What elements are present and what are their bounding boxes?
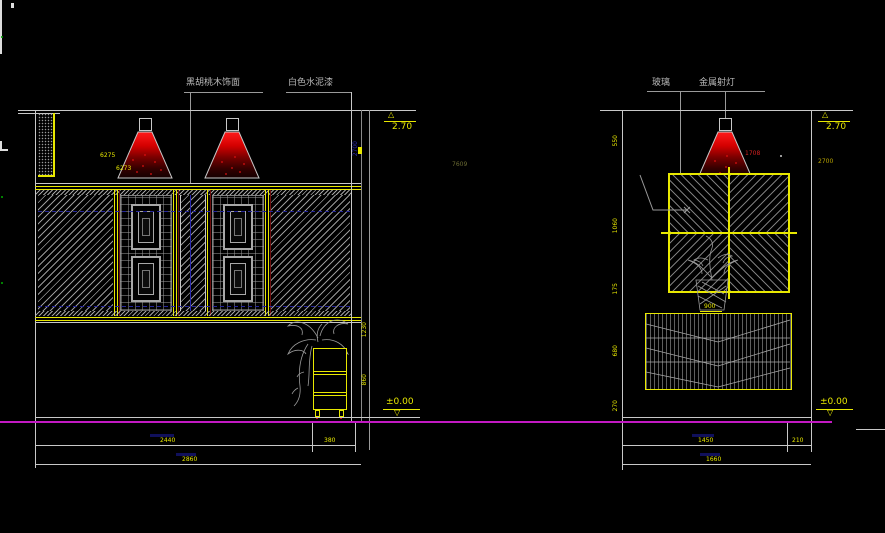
side-dimension-text: 1230 — [362, 322, 368, 337]
band-trim-line — [35, 186, 361, 187]
dimension-text: 1450 — [698, 438, 713, 444]
column-bottom-line — [38, 175, 55, 177]
stray-green-dot — [1, 36, 3, 38]
label-underline — [647, 91, 697, 92]
downlight-beam-icon — [202, 130, 262, 180]
level-value-top: 2.70 — [392, 123, 412, 132]
level-mark-line — [383, 409, 420, 410]
wall-hatch-strip — [181, 195, 205, 311]
panel-tag: 900 — [704, 304, 715, 310]
floor-line — [35, 417, 420, 418]
panel-frame-line — [114, 190, 115, 316]
material-label-wood: 黑胡桃木饰面 — [186, 79, 240, 88]
side-dimension-text: 550 — [613, 135, 619, 146]
dimension-line — [622, 464, 811, 465]
side-cabinet — [313, 348, 347, 410]
faint-dimension-text: 7609 — [452, 162, 467, 168]
louver-chevron-lines — [646, 314, 791, 389]
level-mark-icon: △ — [388, 111, 394, 119]
cabinet-shelf-line — [314, 371, 346, 372]
stray-green-dot — [1, 196, 3, 198]
dimension-text: 1660 — [706, 457, 721, 463]
wall-edge-line — [811, 110, 812, 452]
screen-artifact-bracket — [0, 141, 8, 151]
floor-line — [622, 417, 811, 418]
wall-line — [35, 110, 36, 421]
downlight-beam-icon — [115, 130, 175, 180]
label-underline — [184, 92, 263, 93]
panel-frame-red-line — [210, 190, 211, 316]
dimension-extension-line — [787, 423, 788, 452]
dimension-line — [35, 445, 355, 446]
dimension-extension-line — [369, 110, 370, 450]
wall-hatch-panel — [38, 195, 113, 311]
level-value-top: 2.70 — [826, 123, 846, 132]
cabinet-foot — [315, 410, 320, 417]
level-mark-icon: ▽ — [827, 409, 833, 417]
panel-divider-line — [205, 195, 206, 311]
label-underline — [286, 92, 352, 93]
side-dimension-text: 270 — [613, 400, 619, 411]
dimension-highlight — [358, 147, 362, 154]
aux-blue-line — [38, 211, 350, 212]
material-label-paint: 白色水泥漆 — [288, 79, 333, 88]
lamp-tag: 6273 — [116, 166, 131, 172]
level-value-floor: ±0.00 — [820, 398, 848, 407]
material-label-glass: 玻璃 — [652, 79, 670, 88]
stray-grey-dot — [780, 155, 782, 157]
plant-sketch — [676, 230, 748, 314]
dimension-line — [35, 464, 361, 465]
lattice-medallion — [223, 256, 253, 302]
side-dimension-text: 680 — [613, 345, 619, 356]
panel-frame-line — [268, 190, 269, 316]
dimension-text: 2440 — [160, 438, 175, 444]
aux-blue-line — [38, 306, 350, 307]
lamp-tag: 6275 — [100, 153, 115, 159]
leader-polyline — [636, 172, 696, 217]
material-label-spotlight: 金属射灯 — [699, 79, 735, 88]
floor-baseboard-line — [0, 421, 832, 423]
dimension-extension-line — [355, 423, 356, 452]
dimension-below-level: 2700 — [818, 159, 833, 165]
dimension-extension-line — [622, 110, 623, 470]
side-dimension-text: 860 — [362, 374, 368, 385]
cad-drawing-canvas: 黑胡桃木饰面 白色水泥漆 — [0, 0, 885, 533]
dimension-text: 380 — [324, 438, 335, 444]
lattice-screen-panel — [120, 195, 172, 311]
dimension-text: 2860 — [182, 457, 197, 463]
panel-frame-red-line — [178, 190, 179, 316]
cabinet-shelf-line — [314, 392, 346, 393]
panel-frame-line — [207, 190, 208, 316]
side-dimension-text: 1060 — [613, 218, 619, 233]
band-top-line — [35, 183, 361, 184]
level-value-floor: ±0.00 — [386, 398, 414, 407]
leader-line-lower — [190, 195, 191, 311]
dimension-line — [622, 445, 811, 446]
cabinet-shelf-line — [314, 374, 346, 375]
lattice-medallion — [131, 256, 161, 302]
dimension-extension-line — [312, 423, 313, 452]
panel-frame-line — [117, 190, 118, 316]
stray-line — [856, 429, 885, 430]
ceiling-datum-line — [18, 110, 416, 111]
panel-tag-underline — [700, 311, 722, 312]
level-mark-line — [816, 409, 853, 410]
screen-artifact-dot — [11, 3, 14, 8]
column-edge-line — [53, 113, 55, 177]
panel-frame-line — [265, 190, 266, 316]
panel-frame-line — [173, 190, 174, 316]
dimension-text: 210 — [792, 438, 803, 444]
leader-line — [190, 92, 191, 183]
column-section-hatch — [38, 113, 53, 175]
cabinet-shelf-line — [314, 395, 346, 396]
leader-line — [680, 91, 681, 173]
leader-line — [725, 91, 726, 118]
panel-frame-line — [176, 190, 177, 316]
label-underline — [697, 91, 765, 92]
stray-green-dot — [1, 282, 3, 284]
screen-artifact-bar — [0, 0, 2, 54]
ceiling-datum-line — [600, 110, 853, 111]
level-mark-icon: ▽ — [394, 409, 400, 417]
wall-hatch-panel — [271, 195, 350, 311]
level-mark-icon: △ — [822, 111, 828, 119]
lamp-tag: 1708 — [745, 151, 760, 157]
cabinet-foot — [339, 410, 344, 417]
panel-quadrant-hatch — [730, 175, 788, 232]
side-dimension-text: 175 — [613, 283, 619, 294]
lattice-screen-panel — [212, 195, 264, 311]
